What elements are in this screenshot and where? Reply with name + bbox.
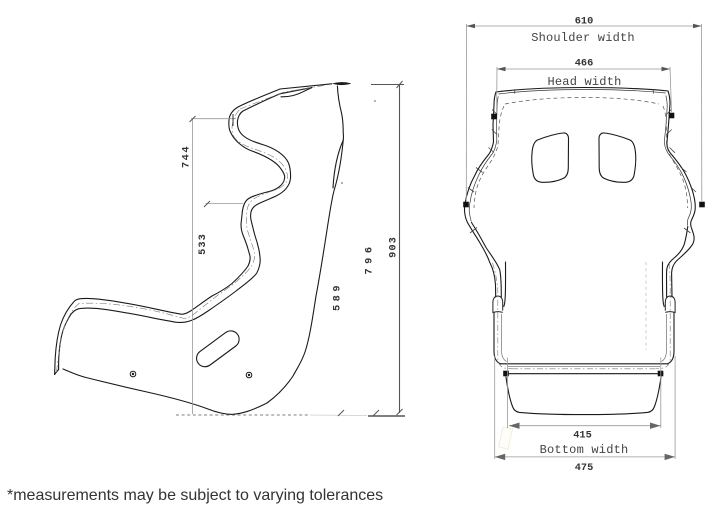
svg-text:Shoulder width: Shoulder width <box>531 31 635 45</box>
svg-text:Head width: Head width <box>547 75 621 89</box>
svg-text:475: 475 <box>575 462 594 474</box>
svg-text:466: 466 <box>575 58 594 70</box>
svg-text:903: 903 <box>388 236 400 258</box>
svg-text:589: 589 <box>332 282 344 311</box>
svg-text:Bottom width: Bottom width <box>540 443 629 457</box>
svg-text:533: 533 <box>197 233 209 255</box>
svg-text:744: 744 <box>181 145 193 168</box>
svg-text:415: 415 <box>573 430 592 442</box>
svg-text:610: 610 <box>575 16 594 28</box>
svg-text:796: 796 <box>364 242 376 274</box>
